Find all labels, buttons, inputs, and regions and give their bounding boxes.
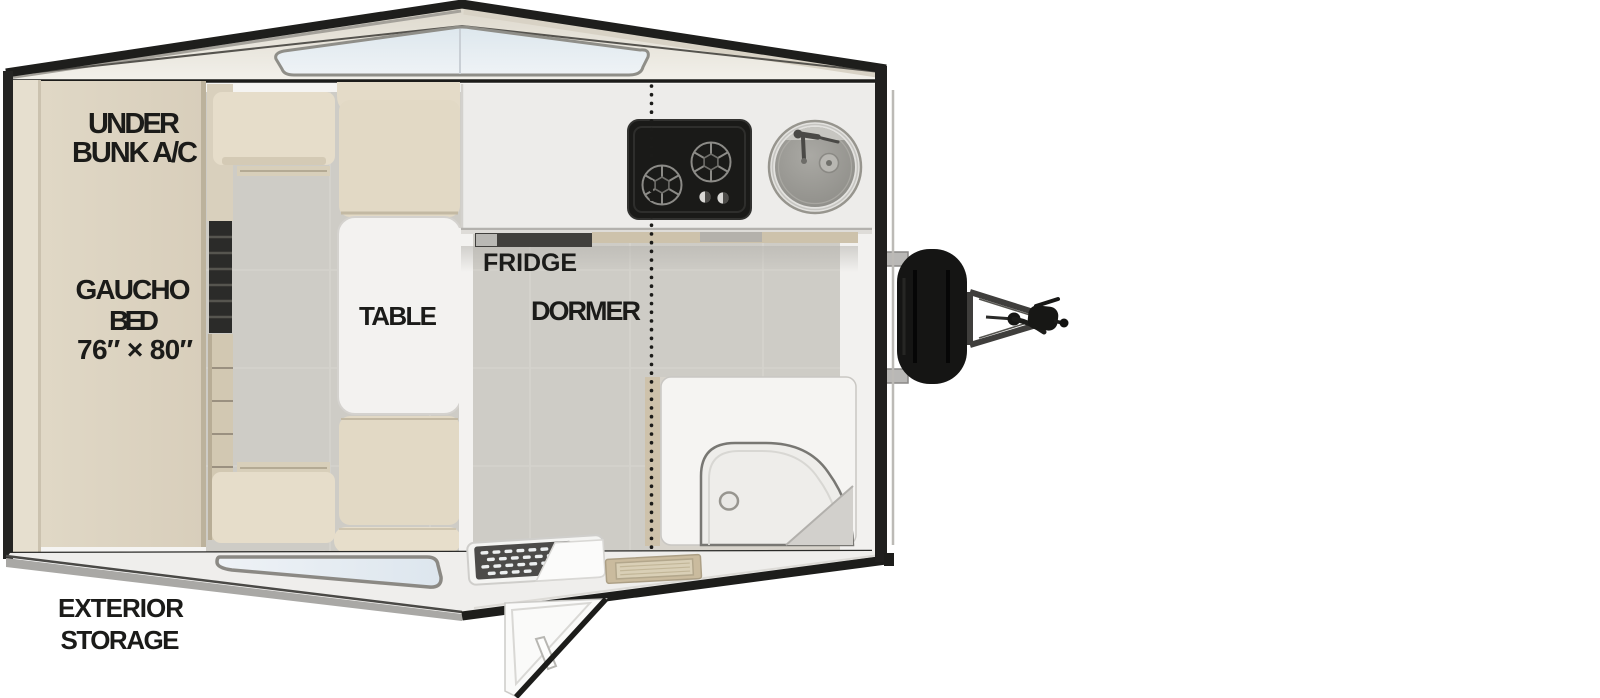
- svg-text:TABLE: TABLE: [359, 301, 437, 331]
- svg-text:76″ × 80″: 76″ × 80″: [77, 334, 193, 365]
- svg-text:FRIDGE: FRIDGE: [483, 249, 577, 277]
- svg-text:BUNK A/C: BUNK A/C: [72, 137, 198, 169]
- svg-text:GAUCHO: GAUCHO: [76, 274, 191, 305]
- svg-text:DORMER: DORMER: [531, 296, 641, 326]
- svg-text:STORAGE: STORAGE: [61, 625, 180, 655]
- svg-text:EXTERIOR: EXTERIOR: [58, 593, 184, 623]
- svg-text:UNDER: UNDER: [88, 108, 180, 140]
- svg-text:BED: BED: [109, 305, 159, 336]
